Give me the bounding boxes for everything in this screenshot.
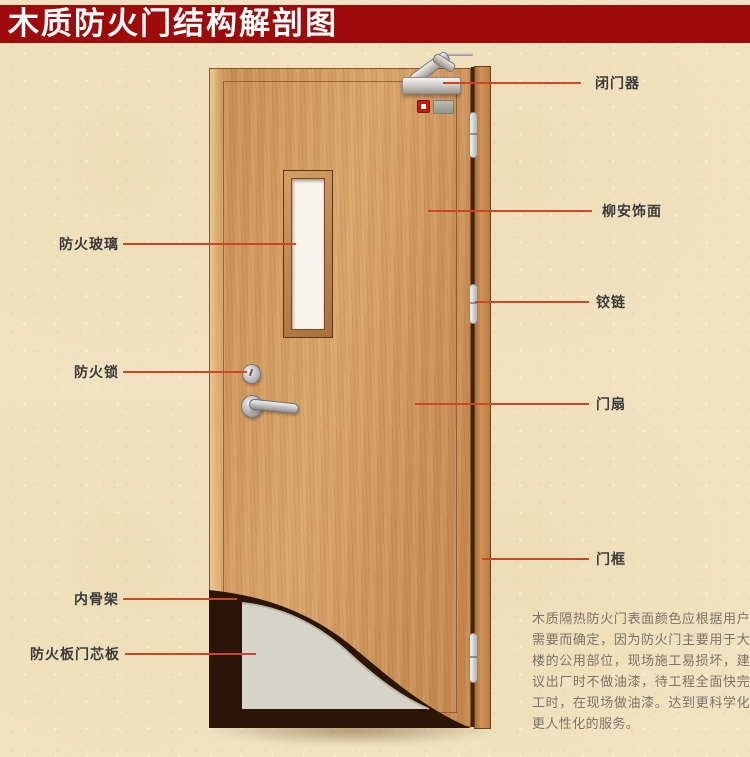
page-title: 木质防火门结构解剖图 xyxy=(8,5,338,43)
hinge-top xyxy=(469,112,478,158)
label-door-leaf: 门扇 xyxy=(596,395,626,413)
leader-line-veneer xyxy=(428,210,592,212)
door-closer-body xyxy=(402,77,461,94)
label-door-closer: 闭门器 xyxy=(595,74,640,92)
description-text: 木质隔热防火门表面颜色应根据用户需要而确定，因为防火门主要用于大楼的公用部位，现… xyxy=(532,608,750,734)
leader-line-core-board xyxy=(125,653,256,655)
label-inner-skeleton: 内骨架 xyxy=(74,590,119,608)
label-plate xyxy=(433,100,454,114)
label-veneer: 柳安饰面 xyxy=(602,202,662,220)
leader-line-fire-lock xyxy=(123,371,247,373)
leader-line-door-closer xyxy=(443,82,581,84)
label-fire-lock: 防火锁 xyxy=(74,363,119,381)
leader-line-inner-skeleton xyxy=(123,598,237,600)
leader-line-hinge xyxy=(475,301,589,303)
hinge-bottom xyxy=(469,633,478,683)
leader-line-fire-glass xyxy=(123,243,296,245)
door-frame xyxy=(474,66,491,729)
hinge-middle xyxy=(469,284,478,324)
label-core-board: 防火板门芯板 xyxy=(30,645,120,663)
fire-glass xyxy=(291,178,325,330)
alarm-indicator-light xyxy=(421,104,426,109)
leader-line-door-leaf xyxy=(415,403,589,405)
leader-line-door-frame xyxy=(482,558,589,560)
infographic-page: { "title": { "text": "木质防火门结构解剖图" }, "di… xyxy=(0,0,750,757)
label-door-frame: 门框 xyxy=(596,550,626,568)
label-hinge: 铰链 xyxy=(596,293,626,311)
door-frame-gap xyxy=(471,67,474,727)
label-fire-glass: 防火玻璃 xyxy=(59,235,119,253)
